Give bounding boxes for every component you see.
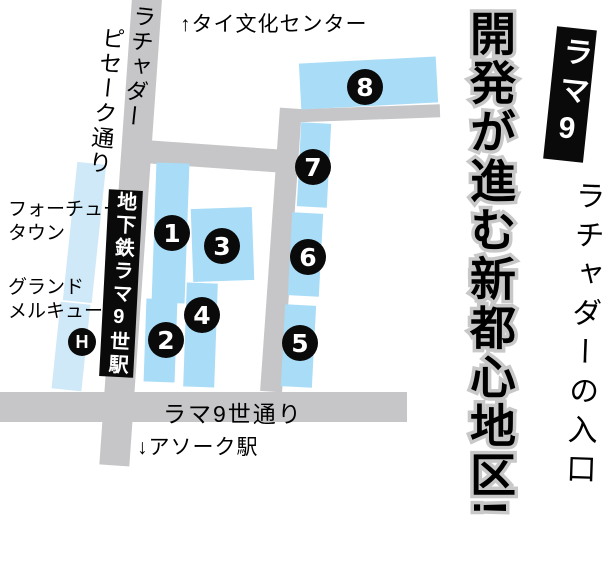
thai-cultural-center-label: ↑タイ文化センター xyxy=(180,8,368,38)
marker-8: 8 xyxy=(347,69,383,105)
rama9-badge-label: ラマ9 xyxy=(542,34,598,155)
marker-2: 2 xyxy=(148,322,184,358)
marker-3-label: 3 xyxy=(213,232,230,261)
hotel-marker: H xyxy=(68,328,96,356)
marker-6-label: 6 xyxy=(299,243,316,272)
marker-8-label: 8 xyxy=(356,73,373,102)
hotel-marker-label: H xyxy=(76,332,89,353)
rama9-road-label: ラマ9世通り xyxy=(163,395,303,429)
station-label: 地下鉄ラマ9世駅 xyxy=(102,190,141,377)
marker-4: 4 xyxy=(184,297,220,333)
marker-3: 3 xyxy=(204,228,240,264)
marker-5-label: 5 xyxy=(291,329,308,358)
marker-1-label: 1 xyxy=(163,219,180,248)
asok-station-label: ↓アソーク駅 xyxy=(137,431,259,461)
marker-5: 5 xyxy=(282,325,318,361)
panel-subtitle: ラチャダーの入口 xyxy=(555,179,610,492)
marker-6: 6 xyxy=(290,239,326,275)
marker-2-label: 2 xyxy=(157,326,174,355)
rama9-badge: ラマ9 xyxy=(543,26,597,162)
marker-7: 7 xyxy=(295,149,331,185)
marker-7-label: 7 xyxy=(304,153,321,182)
marker-4-label: 4 xyxy=(193,301,210,330)
marker-1: 1 xyxy=(154,215,190,251)
panel-headline: 開発が進む新都心地区! xyxy=(457,10,523,518)
